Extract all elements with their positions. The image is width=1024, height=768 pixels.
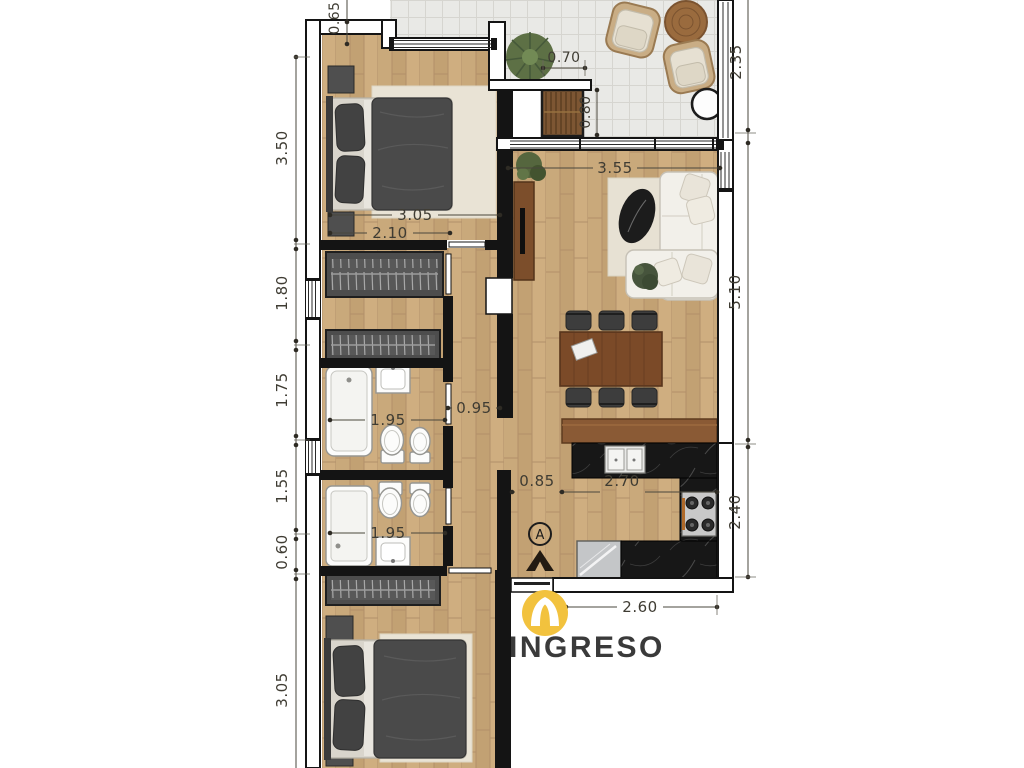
dim-label: 0.95 bbox=[456, 399, 491, 417]
dim-label: 0.65 bbox=[327, 1, 343, 34]
terrace-round-table bbox=[665, 1, 707, 43]
dim-label: 0.85 bbox=[519, 472, 554, 490]
fridge bbox=[577, 541, 621, 579]
nightstand bbox=[326, 616, 353, 640]
window-left-dressing bbox=[306, 278, 320, 320]
dim-label: 5.10 bbox=[726, 274, 744, 309]
kitchen-sink bbox=[605, 446, 645, 473]
bed bbox=[326, 96, 452, 212]
dimension-left-chain: 3.50 1.80 1.75 1.55 0.60 3.05 bbox=[273, 55, 310, 768]
dim-label: 1.95 bbox=[370, 524, 405, 542]
bed bbox=[324, 638, 466, 760]
bidet bbox=[410, 428, 430, 464]
door-dressing bbox=[446, 254, 451, 294]
section-marker-label: A bbox=[536, 528, 545, 543]
dining-area bbox=[560, 311, 662, 407]
dim-label: 2.10 bbox=[372, 224, 407, 242]
terrace-armchair-2 bbox=[662, 38, 717, 95]
wardrobe bbox=[326, 252, 443, 297]
shower bbox=[326, 486, 372, 566]
dim-label: 0.70 bbox=[547, 50, 580, 66]
bathroom-sink bbox=[376, 364, 410, 393]
wardrobe bbox=[326, 330, 440, 360]
breakfast-bar bbox=[562, 419, 717, 443]
dim-label: 0.60 bbox=[273, 534, 291, 569]
entry-label: INGRESO bbox=[509, 631, 665, 664]
dim-label: 1.80 bbox=[273, 275, 291, 310]
wall-niche bbox=[486, 278, 512, 314]
door-bathroom2 bbox=[446, 488, 451, 524]
dining-chairs-bottom bbox=[566, 388, 657, 407]
floor-plan-canvas: 3.50 1.80 1.75 1.55 0.60 3.05 0.65 2.35 … bbox=[0, 0, 1024, 768]
dim-label: 3.50 bbox=[273, 130, 291, 165]
nightstand bbox=[328, 66, 354, 93]
dim-label: 0.80 bbox=[578, 95, 594, 128]
dim-label: 1.95 bbox=[370, 411, 405, 429]
tv-unit bbox=[514, 182, 534, 280]
dim-label: 3.05 bbox=[273, 672, 291, 707]
dim-label: 1.75 bbox=[273, 372, 291, 407]
dim-label: 2.35 bbox=[727, 44, 745, 79]
toilet bbox=[379, 482, 403, 518]
entry-door bbox=[511, 578, 553, 592]
dim-label: 1.55 bbox=[273, 468, 291, 503]
floor-plan: 3.50 1.80 1.75 1.55 0.60 3.05 0.65 2.35 … bbox=[0, 0, 1024, 768]
kitchen-counter-bottom bbox=[621, 541, 717, 579]
window-living-terrace bbox=[510, 139, 724, 150]
bidet bbox=[410, 483, 430, 517]
ingreso-logo-icon bbox=[522, 590, 568, 636]
window-left-bathroom2 bbox=[306, 438, 320, 476]
bathtub bbox=[326, 366, 372, 456]
door-bedroom2 bbox=[449, 568, 491, 573]
stove bbox=[682, 492, 716, 536]
dim-label: 3.55 bbox=[597, 159, 632, 177]
door-bathroom1 bbox=[446, 384, 451, 424]
wooden-screen bbox=[542, 90, 583, 136]
dining-table bbox=[560, 332, 662, 386]
door-bedroom1 bbox=[449, 242, 485, 247]
toilet bbox=[381, 425, 405, 463]
dim-label: 2.70 bbox=[604, 472, 639, 490]
dim-label: 3.05 bbox=[397, 206, 432, 224]
dining-chairs-top bbox=[566, 311, 657, 330]
dim-label: 2.60 bbox=[622, 598, 657, 616]
wardrobe bbox=[326, 575, 440, 605]
dim-label: 2.40 bbox=[726, 494, 744, 529]
